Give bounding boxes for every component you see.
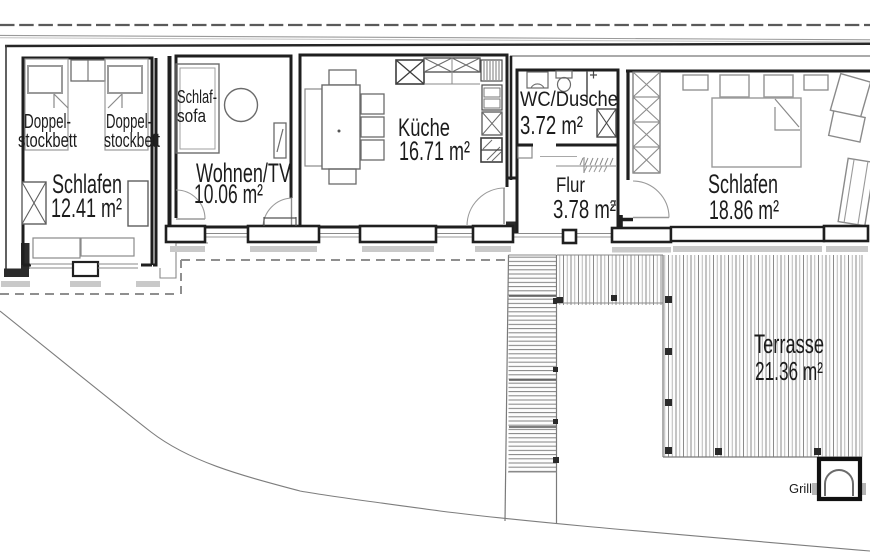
svg-text:21.36 m²: 21.36 m²: [755, 356, 823, 386]
svg-text:stockbett: stockbett: [104, 130, 160, 152]
svg-text:WC/Dusche: WC/Dusche: [520, 88, 618, 111]
svg-text:Terrasse: Terrasse: [754, 329, 824, 359]
svg-text:Grill: Grill: [789, 481, 812, 496]
svg-text:sofa: sofa: [177, 106, 207, 126]
svg-text:Schlaf-: Schlaf-: [177, 87, 217, 107]
svg-text:3.78 m²: 3.78 m²: [553, 194, 616, 224]
svg-text:16.71 m²: 16.71 m²: [399, 136, 470, 166]
svg-text:10.06 m²: 10.06 m²: [194, 179, 263, 209]
svg-text:3.72 m²: 3.72 m²: [520, 110, 583, 140]
svg-text:12.41 m²: 12.41 m²: [51, 193, 122, 223]
svg-text:18.86 m²: 18.86 m²: [709, 195, 779, 225]
svg-text:stockbett: stockbett: [18, 130, 77, 152]
